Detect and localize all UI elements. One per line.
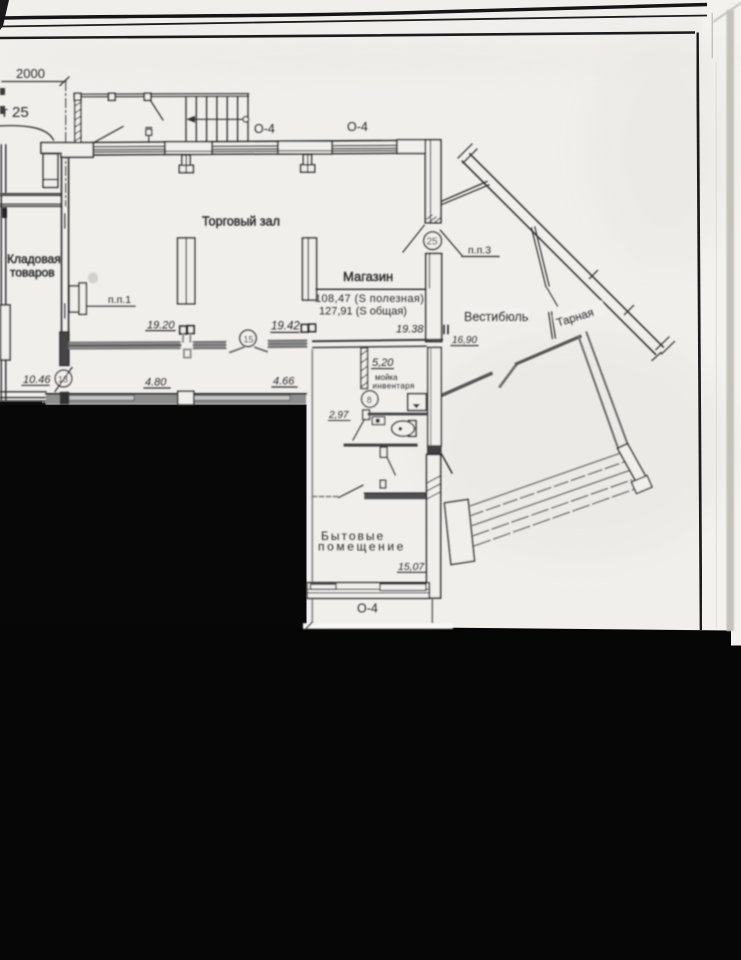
svg-text:19.20: 19.20 <box>147 320 175 332</box>
svg-text:2000: 2000 <box>16 66 45 81</box>
svg-text:п.п.3: п.п.3 <box>468 245 491 257</box>
svg-text:О-4: О-4 <box>357 602 378 616</box>
svg-text:108,47 (S полезная): 108,47 (S полезная) <box>315 293 424 305</box>
svg-text:4.66: 4.66 <box>273 376 295 388</box>
svg-text:помещение: помещение <box>318 540 406 554</box>
svg-text:5,20: 5,20 <box>372 357 394 369</box>
svg-text:О-4: О-4 <box>347 120 368 134</box>
svg-text:п.п.1: п.п.1 <box>108 294 131 306</box>
svg-text:О-4: О-4 <box>254 122 275 136</box>
svg-text:Кладовая: Кладовая <box>7 252 61 266</box>
svg-text:т 25: т 25 <box>1 104 29 121</box>
svg-text:19.42: 19.42 <box>271 321 300 333</box>
svg-text:2,97: 2,97 <box>328 410 349 421</box>
svg-text:8: 8 <box>367 395 372 405</box>
svg-text:15,07: 15,07 <box>398 561 425 573</box>
svg-text:Вестибюль: Вестибюль <box>464 310 528 324</box>
svg-text:15: 15 <box>244 334 254 344</box>
svg-text:Магазин: Магазин <box>343 269 393 284</box>
svg-text:25: 25 <box>427 237 439 248</box>
svg-text:19.38: 19.38 <box>396 324 424 336</box>
svg-text:инвентаря: инвентаря <box>373 382 415 391</box>
svg-text:товаров: товаров <box>10 266 55 280</box>
svg-text:127,91 (S общая): 127,91 (S общая) <box>319 306 407 318</box>
svg-text:Торговый зал: Торговый зал <box>202 215 280 229</box>
svg-text:4.80: 4.80 <box>145 377 167 389</box>
svg-text:16,90: 16,90 <box>452 335 477 346</box>
svg-text:10.46: 10.46 <box>23 374 51 386</box>
